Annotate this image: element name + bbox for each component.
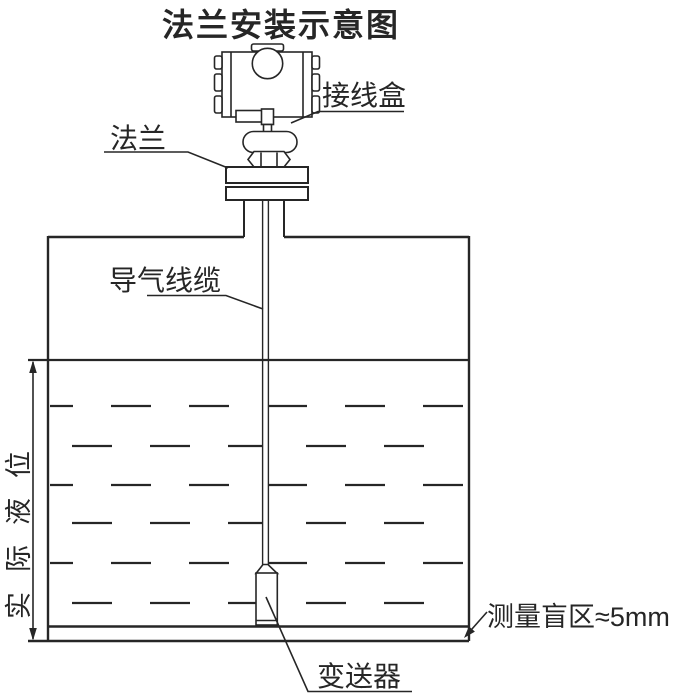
process-coupling (243, 132, 297, 153)
diagram-title: 法兰安装示意图 (162, 7, 400, 43)
flange-leader (104, 152, 228, 168)
blind-zone-label: 测量盲区≈5mm (487, 602, 670, 632)
junction-box-label: 接线盒 (322, 80, 406, 111)
top-dome (252, 48, 282, 78)
flange-plate (226, 167, 308, 183)
transmitter-label: 变送器 (317, 661, 401, 692)
flange-assembly (226, 167, 308, 200)
nozzle-flange-plate (226, 187, 308, 200)
actual-level-label: 实际液位 (4, 431, 34, 619)
level-dimension: 实际液位 (4, 361, 37, 641)
flange-installation-diagram: 实际液位 接线盒 法兰 导气线缆 变送器 测量盲区≈5mm 法兰安装示意图 (0, 0, 700, 700)
arrowhead-up-icon (29, 361, 37, 374)
flange-label: 法兰 (110, 123, 166, 154)
flange-callout: 法兰 (104, 123, 228, 168)
air-cable-callout: 导气线缆 (109, 265, 263, 309)
transmitter-callout: 变送器 (266, 597, 412, 692)
air-guide-cable (263, 200, 269, 566)
arrowhead-down-icon (29, 628, 37, 641)
tank-walls (28, 236, 469, 641)
conduit-block (262, 109, 274, 125)
tank (28, 200, 469, 641)
probe-taper (256, 565, 277, 574)
conduit-tab (236, 111, 262, 123)
air-cable-label: 导气线缆 (109, 265, 221, 296)
transmitter-head (215, 44, 320, 167)
hex-nut (248, 152, 290, 168)
blind-zone-callout: 测量盲区≈5mm (464, 602, 670, 638)
air-cable-leader (147, 296, 263, 310)
